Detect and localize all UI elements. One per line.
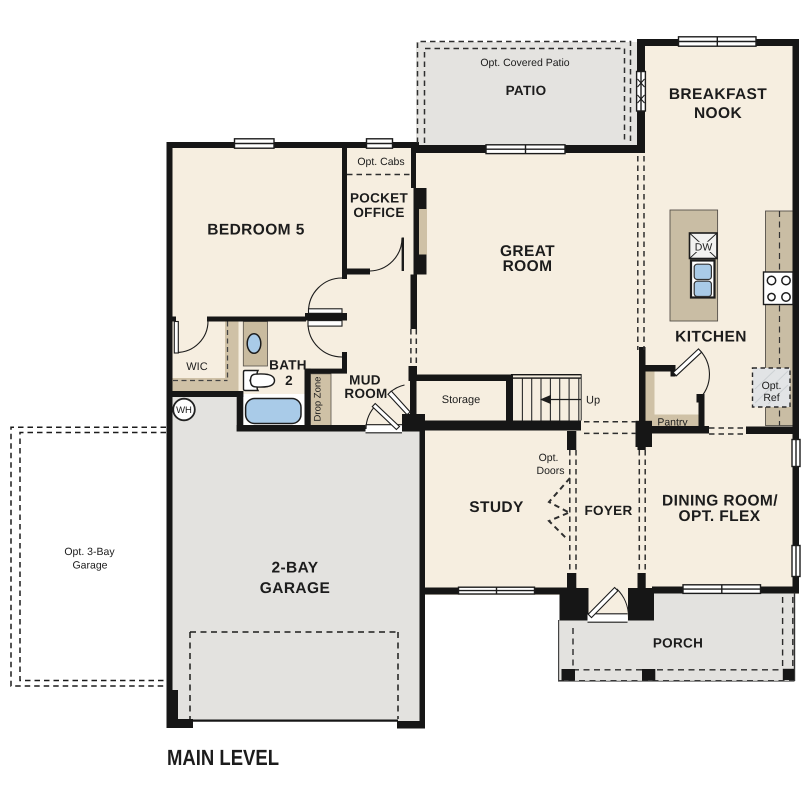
svg-text:DINING ROOM/: DINING ROOM/ <box>662 493 778 510</box>
svg-text:BREAKFAST: BREAKFAST <box>669 86 767 103</box>
svg-text:PORCH: PORCH <box>653 636 703 651</box>
svg-text:FOYER: FOYER <box>584 503 632 518</box>
svg-text:2: 2 <box>285 373 293 388</box>
svg-text:GARAGE: GARAGE <box>260 580 330 597</box>
svg-text:Opt. Covered Patio: Opt. Covered Patio <box>480 57 569 69</box>
svg-text:DW: DW <box>695 242 713 254</box>
svg-text:Opt. Cabs: Opt. Cabs <box>357 156 404 168</box>
svg-text:BEDROOM 5: BEDROOM 5 <box>207 222 304 239</box>
svg-text:Storage: Storage <box>442 394 481 406</box>
svg-text:BATH: BATH <box>269 358 307 373</box>
svg-text:Opt.: Opt. <box>539 452 559 464</box>
svg-text:Opt. 3-Bay: Opt. 3-Bay <box>64 546 115 558</box>
svg-text:Opt.: Opt. <box>762 380 782 392</box>
svg-text:ROOM: ROOM <box>503 258 553 275</box>
svg-text:Drop Zone: Drop Zone <box>313 377 324 422</box>
svg-text:Pantry: Pantry <box>657 417 688 429</box>
svg-text:ROOM: ROOM <box>344 386 387 401</box>
svg-text:OFFICE: OFFICE <box>353 205 404 220</box>
svg-text:Garage: Garage <box>72 560 107 572</box>
svg-text:NOOK: NOOK <box>694 105 743 122</box>
svg-text:2-BAY: 2-BAY <box>271 560 318 577</box>
svg-text:PATIO: PATIO <box>506 83 547 98</box>
svg-text:Up: Up <box>586 395 600 407</box>
svg-text:WH: WH <box>176 405 192 416</box>
svg-text:Ref: Ref <box>763 392 779 404</box>
svg-text:KITCHEN: KITCHEN <box>675 329 747 346</box>
svg-text:POCKET: POCKET <box>350 191 409 206</box>
svg-text:MAIN LEVEL: MAIN LEVEL <box>167 745 279 770</box>
svg-text:WIC: WIC <box>186 361 207 373</box>
svg-text:STUDY: STUDY <box>469 499 524 516</box>
svg-text:OPT. FLEX: OPT. FLEX <box>679 508 761 525</box>
svg-text:Doors: Doors <box>536 465 564 477</box>
